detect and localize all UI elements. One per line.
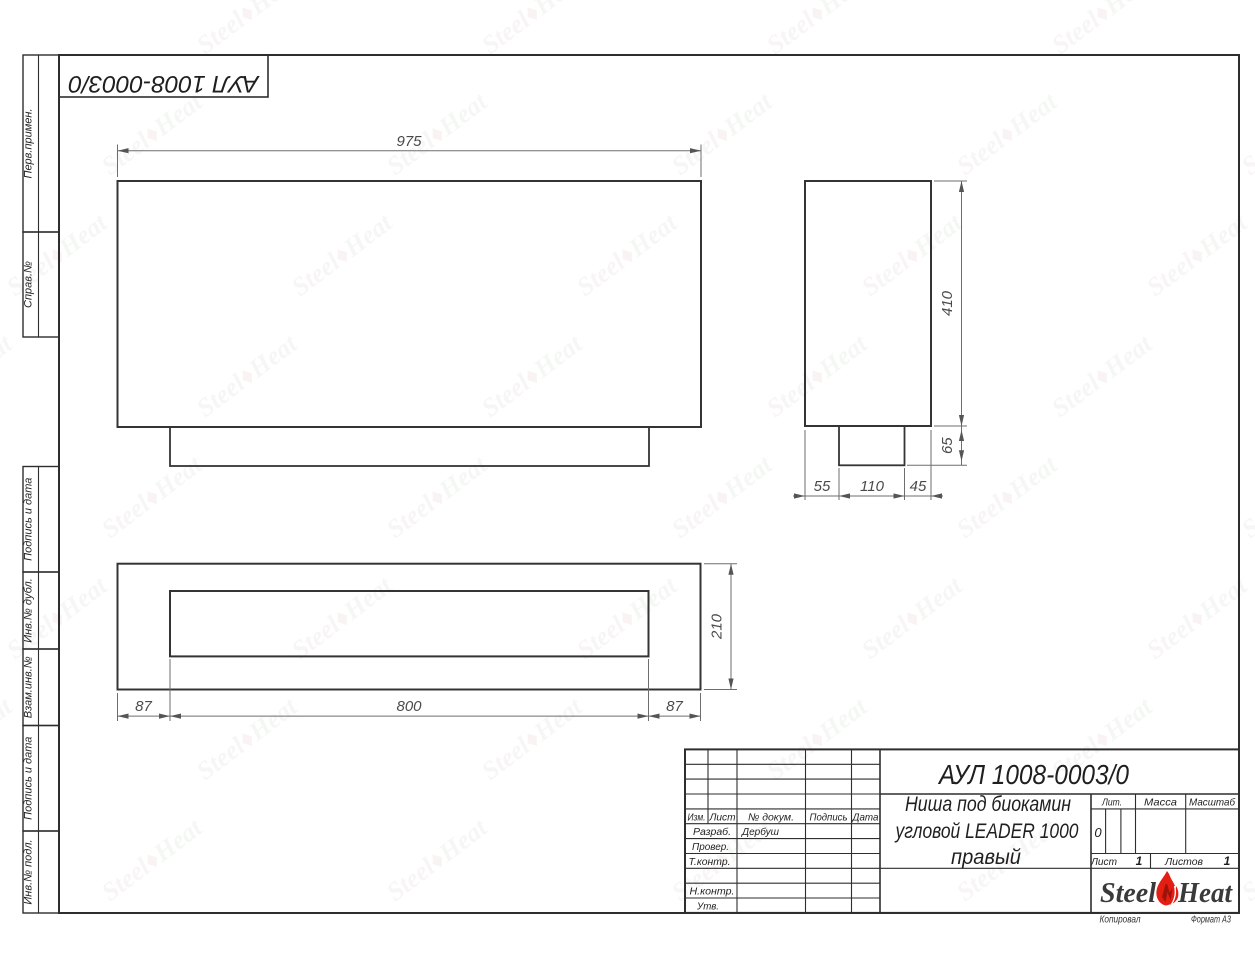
- svg-text:Дербуш: Дербуш: [741, 826, 779, 838]
- svg-text:1: 1: [1224, 854, 1231, 868]
- svg-text:Подпись: Подпись: [810, 811, 848, 823]
- svg-text:Лист: Лист: [709, 811, 736, 823]
- svg-text:Формат А3: Формат А3: [1191, 914, 1231, 926]
- svg-text:65: 65: [939, 437, 956, 454]
- svg-text:Разраб.: Разраб.: [693, 826, 731, 838]
- svg-text:0: 0: [1094, 825, 1102, 840]
- svg-text:Копировал: Копировал: [1100, 914, 1141, 926]
- svg-text:Масштаб: Масштаб: [1189, 797, 1236, 809]
- svg-text:Лит.: Лит.: [1101, 797, 1122, 809]
- svg-text:1: 1: [1136, 854, 1143, 868]
- svg-text:АУЛ 1008-0003/0: АУЛ 1008-0003/0: [68, 70, 261, 97]
- svg-text:410: 410: [939, 290, 956, 316]
- svg-text:55: 55: [814, 478, 831, 495]
- svg-text:45: 45: [910, 478, 927, 495]
- svg-text:Инв.№ подл.: Инв.№ подл.: [23, 839, 35, 904]
- svg-text:Н.контр.: Н.контр.: [690, 886, 735, 898]
- svg-text:угловой LEADER 1000: угловой LEADER 1000: [894, 819, 1079, 843]
- svg-text:210: 210: [709, 613, 726, 640]
- svg-text:Перв.примен.: Перв.примен.: [23, 108, 35, 178]
- svg-text:правый: правый: [951, 845, 1021, 869]
- svg-text:800: 800: [396, 698, 422, 715]
- svg-text:АУЛ 1008-0003/0: АУЛ 1008-0003/0: [937, 759, 1129, 790]
- svg-text:110: 110: [860, 478, 885, 495]
- svg-text:№ докум.: № докум.: [748, 811, 794, 823]
- svg-text:87: 87: [666, 698, 683, 715]
- svg-text:Масса: Масса: [1144, 797, 1177, 809]
- svg-text:Подпись и дата: Подпись и дата: [23, 737, 35, 820]
- svg-text:Heat: Heat: [1177, 877, 1233, 909]
- svg-text:Утв.: Утв.: [696, 900, 719, 912]
- svg-text:Справ.№: Справ.№: [23, 261, 35, 308]
- svg-text:Провер.: Провер.: [692, 841, 729, 853]
- svg-text:Взам.инв.№: Взам.инв.№: [23, 656, 35, 718]
- svg-text:Дата: Дата: [852, 811, 879, 823]
- svg-text:Steel: Steel: [1100, 877, 1157, 909]
- svg-text:Подпись и дата: Подпись и дата: [23, 478, 35, 561]
- svg-text:87: 87: [135, 698, 152, 715]
- svg-text:Листов: Листов: [1164, 856, 1203, 868]
- svg-text:Лист: Лист: [1090, 856, 1117, 868]
- svg-text:Ниша под биокамин: Ниша под биокамин: [905, 792, 1071, 816]
- svg-text:975: 975: [396, 133, 422, 150]
- svg-text:Инв.№ дубл.: Инв.№ дубл.: [23, 578, 35, 643]
- svg-text:Т.контр.: Т.контр.: [689, 856, 731, 868]
- svg-text:Изм.: Изм.: [688, 811, 706, 823]
